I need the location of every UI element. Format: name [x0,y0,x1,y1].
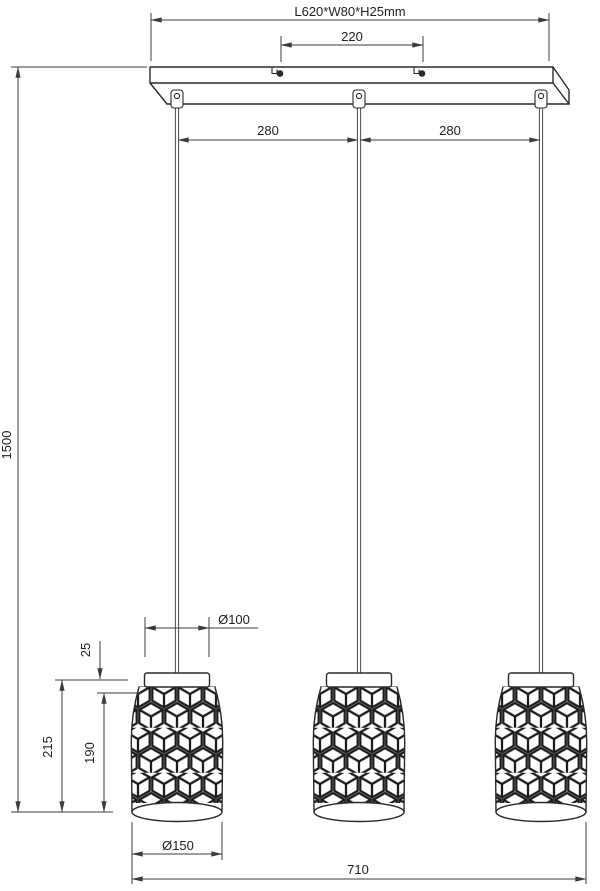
cord-grip-right [535,90,547,108]
dimension-cap-height: 25 [78,641,100,679]
cord-right [539,108,542,676]
cord-grip-left [171,90,183,108]
pendant-shade-middle [313,673,405,822]
pendant-shade-right [495,673,587,822]
cord-middle [357,108,360,676]
cord-left [175,108,178,676]
dimension-label-shade-height: 215 [40,736,55,758]
dimension-shade-diameter: Ø150 [132,822,222,860]
dimension-label-overall-width: 710 [347,862,369,877]
pendant-lamp-dimension-drawing: L620*W80*H25mm 220 280 280 1500 215 190 … [0,0,600,891]
dimension-label-canopy-size: L620*W80*H25mm [294,4,405,19]
dimension-overall-width: 710 [132,822,586,884]
pendant-shade-left [131,673,223,822]
dimension-label-cord-spacing-1: 280 [257,123,279,138]
dimension-label-drop: 1500 [0,431,14,460]
canopy-front-face [150,67,553,83]
dimension-label-body-height: 190 [82,742,97,764]
dimension-cord-spacing: 280 280 [178,123,540,140]
dimension-overall-drop: 1500 [0,67,147,812]
dimension-cap-diameter: Ø100 [145,612,258,657]
dimension-label-cap-height: 25 [78,643,93,657]
suspension-cords [175,108,542,676]
dimension-label-cord-spacing-2: 280 [439,123,461,138]
ceiling-canopy [150,67,569,108]
cord-grip-middle [353,90,365,108]
dimension-label-mount-spacing: 220 [341,29,363,44]
dimension-label-shade-diameter: Ø150 [162,838,194,853]
dimension-mount-spacing: 220 [281,29,423,62]
dimension-label-cap-diameter: Ø100 [218,612,250,627]
technical-drawing-page: L620*W80*H25mm 220 280 280 1500 215 190 … [0,0,600,891]
